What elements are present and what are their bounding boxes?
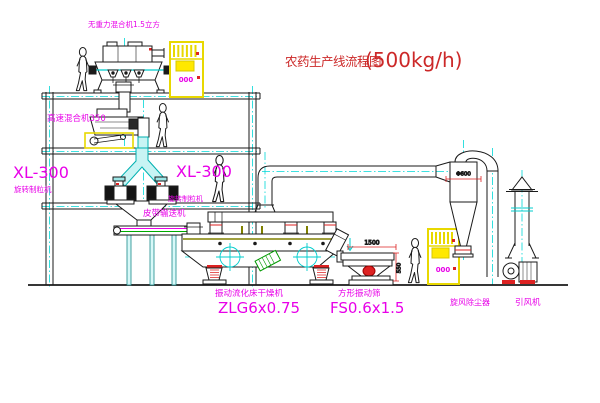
cyclone-diameter-dim: Φ600 <box>456 172 471 178</box>
induced-draft-fan <box>502 262 537 284</box>
label-sieve-name: 方形振动筛 <box>338 288 381 299</box>
label-gravity-free-mixer: 无重力混合机1.5立方 <box>88 19 160 29</box>
worker-figure <box>408 238 421 282</box>
cabinet2-panel-text: 000 <box>436 266 451 274</box>
label-granulator-center-model: XL-300 <box>176 162 232 181</box>
cabinet1-panel-text: 000 <box>179 76 194 84</box>
gravity-free-mixer <box>89 42 171 112</box>
label-sieve-model: FS0.6x1.5 <box>330 299 404 317</box>
label-dryer-model: ZLG6x0.75 <box>218 299 300 317</box>
sieve-height-dim: 550 <box>397 262 403 273</box>
page-title-capacity: (500kg/h) <box>365 48 462 72</box>
label-granulator-center-name: 旋转制粒机 <box>168 194 203 203</box>
worker-figure <box>76 47 88 90</box>
sieve-length-dim: 1500 <box>364 240 379 247</box>
label-cyclone: 旋风除尘器 <box>450 297 490 307</box>
label-belt-conveyor: 皮带输送机 <box>143 208 186 219</box>
label-granulator-left-name: 旋转制粒机 <box>14 184 52 194</box>
spring-support-left <box>203 265 226 284</box>
label-high-speed-mixer: 高速混合机350 <box>47 113 106 124</box>
exhaust-hood <box>208 205 333 222</box>
vibrating-sieve: 1500 550 <box>326 229 403 285</box>
fluid-bed-dryer <box>182 222 338 284</box>
exhaust-duct <box>258 162 450 205</box>
rotary-granulator-left <box>105 177 136 204</box>
worker-figure <box>156 103 168 146</box>
spring-support-right <box>310 265 333 284</box>
control-cabinet-1: 000 <box>170 42 203 97</box>
label-dryer-name: 振动流化床干燥机 <box>215 288 284 299</box>
cad-drawing-canvas: 000 <box>0 0 600 403</box>
label-fan: 引风机 <box>515 297 541 308</box>
label-granulator-left-model: XL-300 <box>13 163 69 182</box>
